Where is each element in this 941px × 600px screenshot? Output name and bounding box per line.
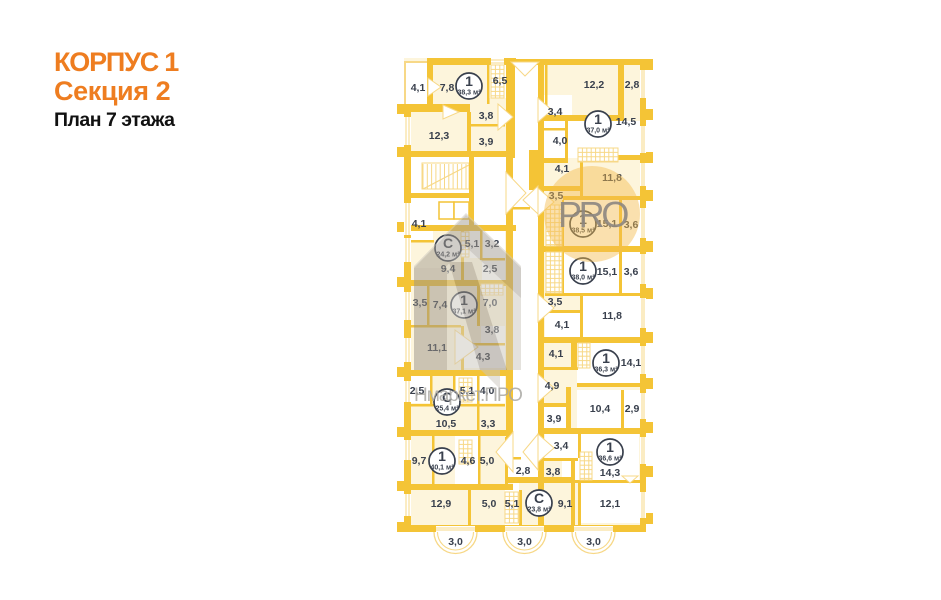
svg-text:2,8: 2,8 (516, 465, 531, 477)
svg-text:12,1: 12,1 (600, 498, 621, 510)
svg-text:12,9: 12,9 (431, 498, 452, 510)
svg-text:6,5: 6,5 (493, 75, 508, 87)
svg-text:1: 1 (602, 350, 610, 366)
svg-text:1: 1 (606, 439, 614, 455)
svg-text:23,8 м²: 23,8 м² (527, 507, 551, 514)
svg-text:4,1: 4,1 (412, 218, 427, 230)
svg-text:3,0: 3,0 (517, 536, 532, 548)
svg-text:38,3 м²: 38,3 м² (457, 90, 481, 97)
svg-text:5,0: 5,0 (482, 498, 497, 510)
svg-text:12,3: 12,3 (429, 130, 450, 142)
svg-text:2,8: 2,8 (625, 79, 640, 91)
svg-text:3,6: 3,6 (624, 266, 639, 278)
svg-text:С: С (534, 490, 544, 506)
svg-text:10,4: 10,4 (590, 403, 611, 415)
svg-text:25,4 м²: 25,4 м² (435, 406, 459, 413)
svg-text:1: 1 (594, 111, 602, 127)
svg-text:15,1: 15,1 (597, 266, 618, 278)
svg-text:14,1: 14,1 (621, 357, 642, 369)
svg-text:4,9: 4,9 (545, 380, 560, 392)
svg-text:2,9: 2,9 (625, 403, 640, 415)
svg-text:4,0: 4,0 (553, 135, 568, 147)
svg-text:5,0: 5,0 (480, 455, 495, 467)
svg-text:4,6: 4,6 (461, 455, 476, 467)
svg-text:3,9: 3,9 (547, 413, 562, 425)
svg-text:14,3: 14,3 (600, 467, 621, 479)
svg-text:37,0 м²: 37,0 м² (586, 128, 610, 135)
svg-text:3,9: 3,9 (479, 136, 494, 148)
svg-text:38,0 м²: 38,0 м² (571, 275, 595, 282)
svg-text:PRO: PRO (558, 194, 628, 235)
svg-text:3,0: 3,0 (448, 536, 463, 548)
svg-text:14,5: 14,5 (616, 116, 637, 128)
svg-text:4,1: 4,1 (549, 348, 564, 360)
svg-text:5,1: 5,1 (505, 498, 520, 510)
svg-text:Нмаркет.ПРО: Нмаркет.ПРО (414, 385, 522, 406)
svg-text:10,5: 10,5 (436, 418, 457, 430)
svg-text:12,2: 12,2 (584, 79, 605, 91)
svg-text:1: 1 (465, 73, 473, 89)
svg-text:9,7: 9,7 (412, 455, 427, 467)
svg-text:3,4: 3,4 (548, 106, 563, 118)
svg-text:3,3: 3,3 (481, 418, 496, 430)
svg-text:40,1 м²: 40,1 м² (430, 465, 454, 472)
svg-text:3,0: 3,0 (586, 536, 601, 548)
svg-text:3,8: 3,8 (546, 466, 561, 478)
svg-text:36,6 м²: 36,6 м² (598, 456, 622, 463)
svg-text:4,1: 4,1 (411, 82, 426, 94)
svg-text:36,3 м²: 36,3 м² (594, 367, 618, 374)
svg-text:4,1: 4,1 (555, 319, 570, 331)
svg-text:3,4: 3,4 (554, 440, 569, 452)
svg-text:3,5: 3,5 (548, 296, 563, 308)
svg-text:3,8: 3,8 (479, 110, 494, 122)
svg-text:9,1: 9,1 (558, 498, 573, 510)
svg-text:11,8: 11,8 (602, 310, 622, 322)
svg-text:7,8: 7,8 (440, 82, 455, 94)
svg-text:1: 1 (438, 448, 446, 464)
